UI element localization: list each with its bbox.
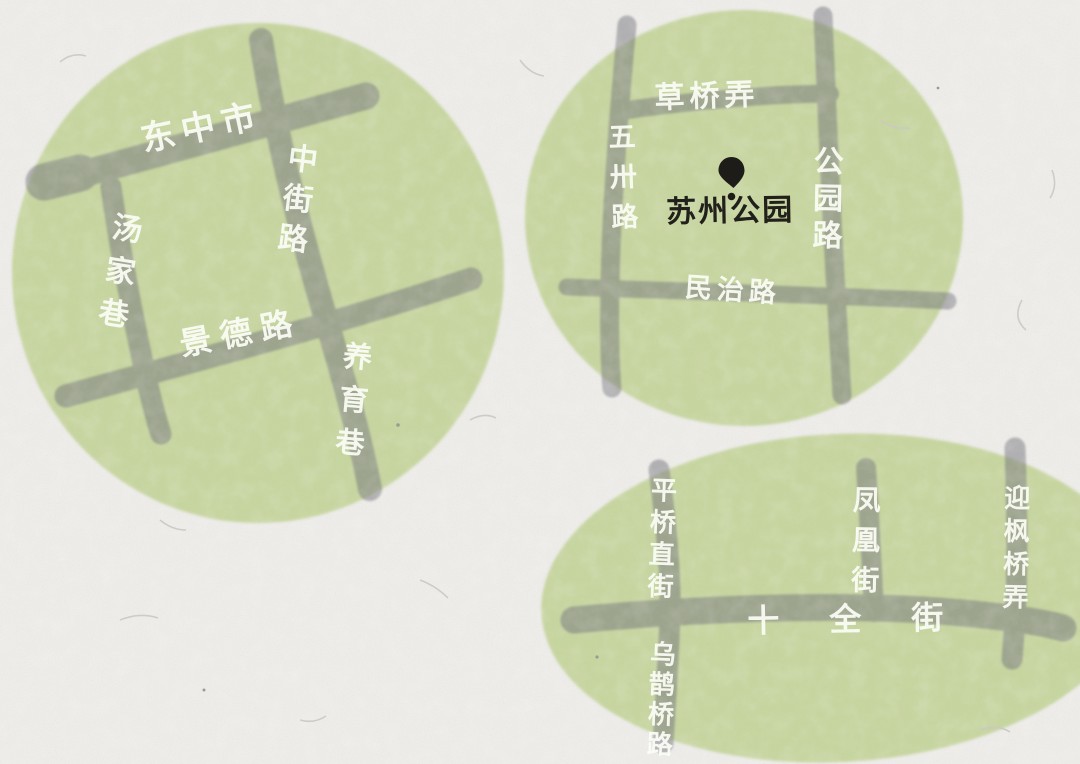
street-label-pingqiaozhijie: 平桥直街 [645, 476, 675, 605]
street-label-gongyuanlu: 公园路 [808, 145, 840, 257]
street-label-wuqueqiaolu: 乌鹊桥路 [644, 640, 674, 761]
paper-speckle-texture [0, 0, 1080, 764]
map-drawing [0, 0, 1080, 764]
street-label-yingfengqiaonong: 迎枫桥弄 [1000, 484, 1028, 616]
street-label-caoqiaonong: 草桥弄 [654, 80, 760, 114]
street-label-wusalu: 五卅路 [605, 122, 636, 243]
street-label-fenghuangjie: 凤凰街 [849, 485, 879, 605]
illustrated-map: 东中市 中街路 汤家巷 景德路 养育巷 草桥弄 五卅路 公园路 民治路 苏州公园… [0, 0, 1080, 764]
poi-label-suzhou-park: 苏州公园 [666, 196, 795, 228]
street-label-shiquanjie: 十全街 [747, 601, 994, 637]
street-label-minzhilu: 民治路 [684, 274, 782, 308]
